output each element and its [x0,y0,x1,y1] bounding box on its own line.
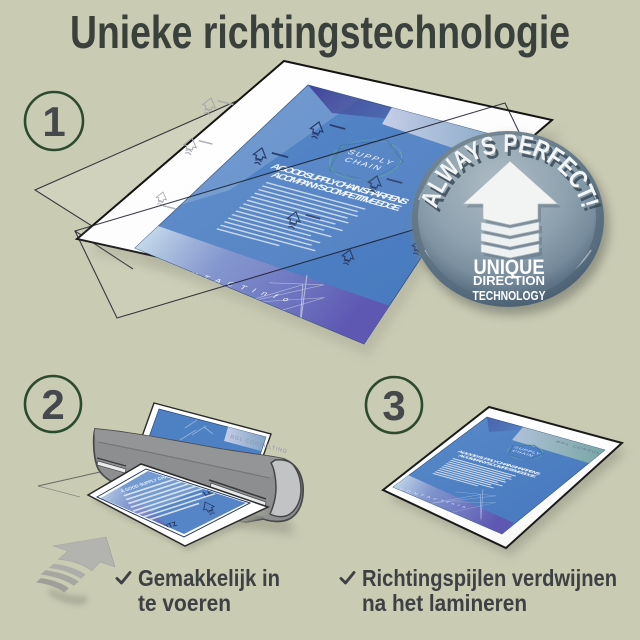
svg-text:TECHNOLOGY: TECHNOLOGY [473,288,546,303]
svg-text:Richtingspijlen verdwijnen: Richtingspijlen verdwijnen [362,565,617,591]
svg-text:te voeren: te voeren [138,590,231,616]
svg-text:Gemakkelijk in: Gemakkelijk in [138,565,280,591]
svg-text:DIRECTION: DIRECTION [473,273,545,288]
svg-text:3: 3 [382,382,405,429]
svg-text:1: 1 [42,98,65,145]
svg-text:na het lamineren: na het lamineren [362,590,527,616]
svg-text:2: 2 [41,381,64,428]
svg-text:Unieke richtingstechnologie: Unieke richtingstechnologie [70,6,570,58]
